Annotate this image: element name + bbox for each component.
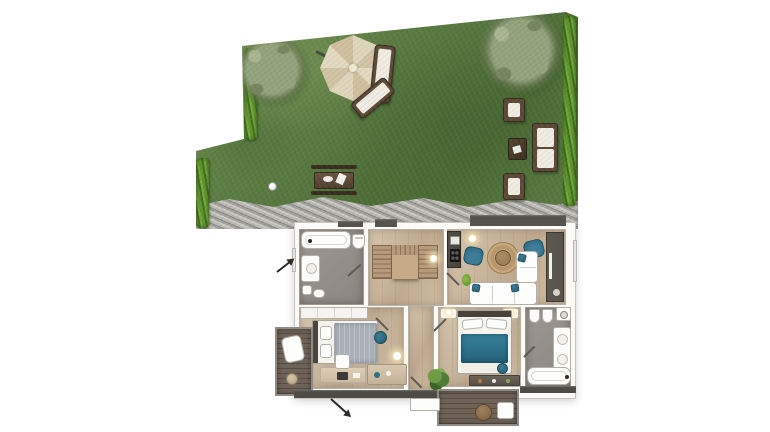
pillow: [462, 318, 484, 330]
sofa-cushion: [537, 149, 554, 168]
terrace: [437, 389, 519, 426]
stair-flight: [372, 245, 392, 279]
magazine: [512, 145, 521, 154]
property-floorplan-rendering: [0, 0, 770, 432]
picnic-table-set: [310, 162, 358, 198]
pillow: [486, 318, 508, 330]
headboard: [458, 311, 511, 317]
lounge-chair: [281, 334, 306, 364]
ceiling-light: [469, 235, 476, 242]
pillow: [320, 344, 332, 358]
balcony: [275, 327, 313, 396]
entrance-arrow: [330, 398, 347, 414]
wardrobe: [300, 307, 368, 319]
headboard: [313, 321, 318, 363]
tree: [471, 2, 567, 102]
sofa-seam: [492, 286, 493, 303]
garden: [195, 8, 578, 229]
sliding-door-band: [470, 215, 566, 226]
media-wall: [546, 232, 564, 302]
seat-cushion: [508, 103, 520, 117]
sink-bowl: [557, 334, 568, 345]
stair-landing: [392, 255, 418, 279]
floor-lamp: [393, 352, 401, 360]
bottom-wall-band: [294, 390, 437, 398]
window: [573, 240, 577, 282]
toilet: [529, 309, 540, 323]
pouf: [497, 363, 508, 374]
sink-bowl: [306, 263, 317, 274]
kitchen-counter: [447, 231, 461, 268]
sideboard: [367, 364, 407, 385]
football: [268, 182, 277, 191]
blanket: [461, 334, 508, 363]
laptop: [337, 372, 348, 380]
coffee-table: [495, 250, 511, 266]
faucet: [565, 375, 569, 379]
cooktop: [450, 249, 460, 262]
decor: [492, 379, 496, 383]
desk-chair: [335, 354, 350, 369]
decor: [386, 371, 391, 376]
garden-armchair: [503, 173, 525, 200]
pillow: [471, 283, 480, 292]
garden-sofa: [532, 123, 558, 172]
tub-basin: [531, 371, 567, 381]
sink-bowl: [557, 354, 568, 365]
decor: [478, 379, 482, 383]
ceiling-light: [430, 255, 437, 262]
pillow: [510, 283, 519, 292]
tableware: [323, 176, 333, 182]
toilet: [352, 234, 365, 249]
bottom-wall-band: [520, 386, 576, 393]
bathtub: [527, 367, 571, 385]
hedge-left-lower: [196, 158, 209, 228]
tv: [549, 253, 552, 279]
window-band: [338, 221, 363, 227]
entrance-arrow: [276, 261, 290, 272]
washing-machine: [556, 307, 571, 321]
cistern: [355, 237, 363, 239]
washer-door: [560, 311, 568, 319]
seat-cushion: [508, 178, 520, 195]
faucet: [308, 239, 312, 243]
stool: [302, 285, 312, 295]
bench: [311, 165, 357, 169]
papers: [353, 373, 360, 378]
kitchen-sink: [450, 236, 460, 245]
side-table: [286, 373, 298, 385]
bidet: [542, 309, 553, 323]
pillow: [320, 326, 332, 340]
decor: [506, 379, 510, 383]
plant: [462, 274, 471, 286]
double-washbasin: [553, 327, 571, 372]
entrance-step: [410, 398, 440, 411]
stair-flight: [418, 245, 438, 279]
outdoor-table: [475, 404, 492, 421]
decor-lamp: [553, 289, 560, 296]
garden-coffee-table: [508, 138, 527, 160]
staircase: [372, 245, 438, 279]
washbasin-vanity: [301, 255, 320, 282]
sofa-seam: [520, 267, 536, 268]
plant: [425, 367, 451, 391]
stair-flight: [392, 245, 418, 255]
bench: [311, 191, 357, 195]
dresser: [469, 375, 520, 386]
desk: [320, 367, 366, 383]
tree: [228, 30, 312, 112]
bath-mat: [313, 289, 325, 298]
pouf: [374, 331, 387, 344]
table-top: [314, 172, 354, 189]
window-band: [375, 219, 397, 227]
floor-plan: [275, 214, 578, 432]
bedside-lamp: [446, 310, 451, 315]
decor: [374, 372, 380, 378]
outdoor-chair: [497, 402, 514, 419]
bathtub: [301, 231, 351, 249]
sofa-cushion: [537, 128, 554, 147]
